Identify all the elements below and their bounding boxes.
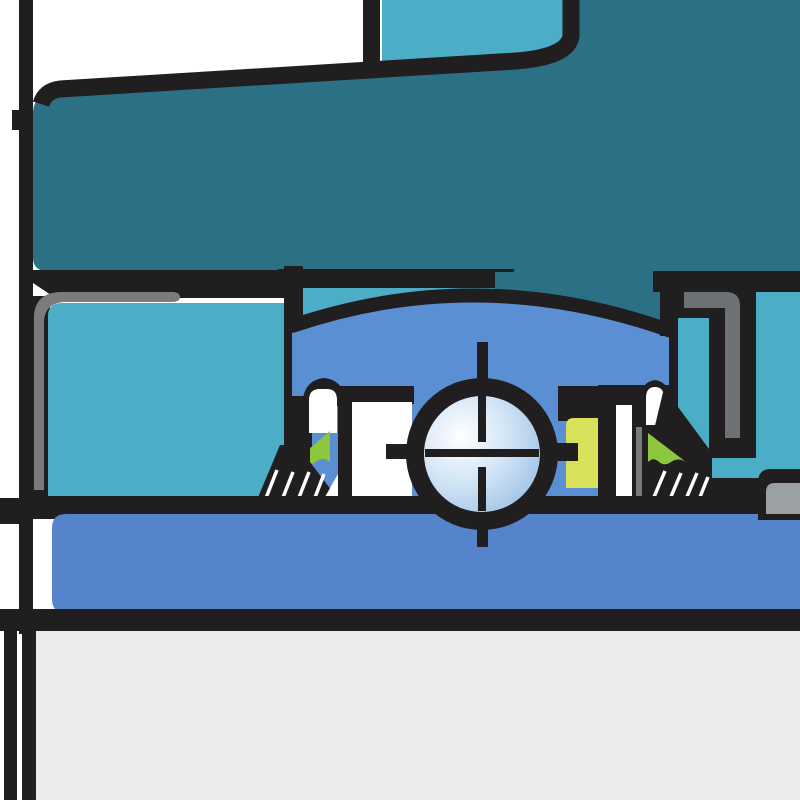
left-flinger [309, 389, 337, 433]
bottom-left-line-inner [22, 631, 36, 800]
shaft-body-area [36, 629, 800, 800]
right-seal-spring-line [636, 427, 642, 497]
diagram-canvas [0, 0, 800, 800]
right-seal-washer [616, 405, 632, 497]
left-edge-nub [12, 110, 19, 130]
inner-ring-left-edge [338, 395, 352, 497]
left-edge-line [19, 0, 33, 634]
bottom-left-line-outer [4, 631, 17, 800]
shaft-sleeve [52, 514, 800, 613]
right-collar [766, 483, 800, 514]
left-cover-block [48, 303, 288, 500]
right-step-bar [660, 271, 678, 336]
bottom-band-left-stub [0, 498, 33, 524]
shaft-bottom-line [0, 609, 800, 631]
bearing-cross-section-figure [0, 0, 800, 800]
cover-flange-bar [363, 0, 380, 75]
